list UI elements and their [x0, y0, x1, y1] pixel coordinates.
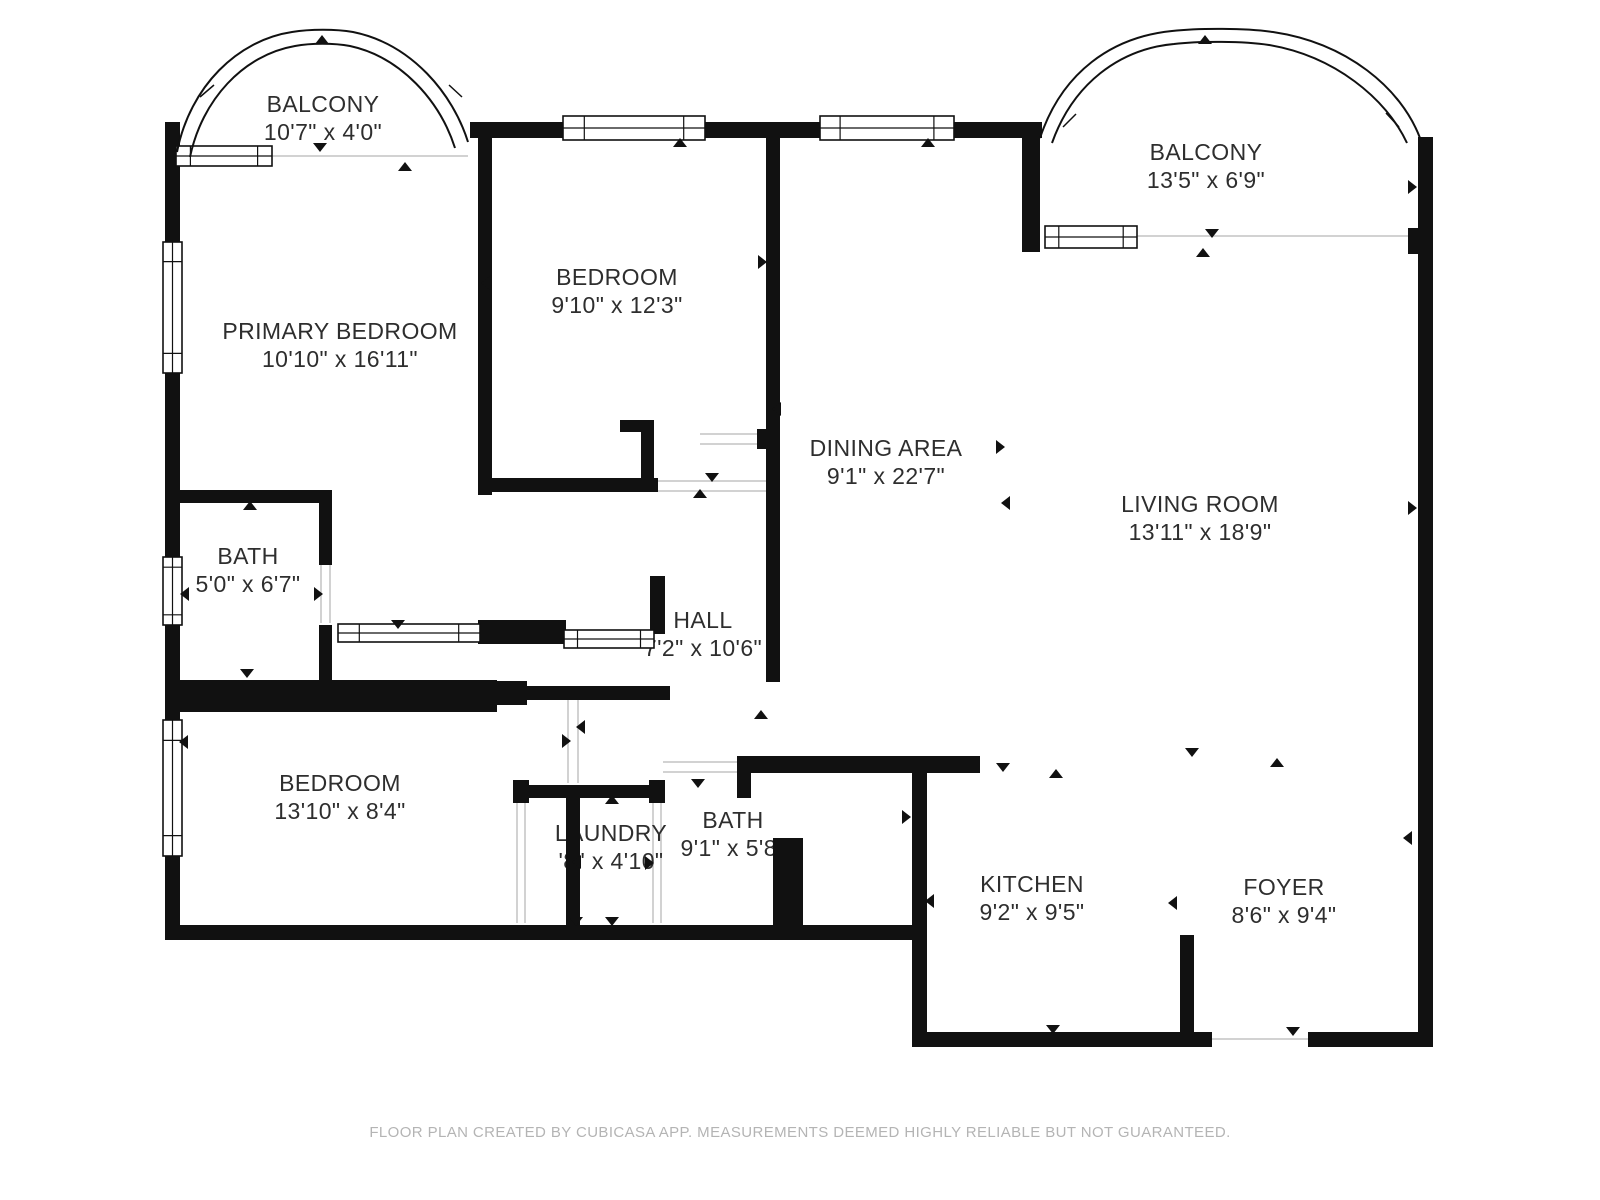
- door-arrow-icon: [754, 710, 768, 719]
- room-label-dining-area: DINING AREA: [810, 435, 963, 461]
- room-dims-primary-bedroom: 10'10" x 16'11": [262, 346, 418, 372]
- room-dims-balcony-top-right: 13'5" x 6'9": [1147, 167, 1265, 193]
- wall: [1180, 935, 1194, 1034]
- wall: [165, 373, 180, 557]
- wall: [766, 122, 780, 682]
- room-label-bedroom-top: BEDROOM: [556, 264, 678, 290]
- wall: [737, 756, 751, 798]
- balcony-arch-right-tick: [1386, 113, 1399, 127]
- wall: [912, 1032, 1212, 1047]
- room-label-balcony-top-left: BALCONY: [267, 91, 380, 117]
- wall: [1022, 122, 1040, 252]
- room-dims-foyer: 8'6" x 9'4": [1232, 902, 1337, 928]
- wall: [757, 429, 766, 449]
- door-arrow-icon: [1403, 831, 1412, 845]
- room-dims-balcony-top-left: 10'7" x 4'0": [264, 119, 382, 145]
- room-label-bath-main: BATH: [702, 807, 763, 833]
- door-arrow-icon: [1168, 896, 1177, 910]
- balcony-arch-right-inner: [1052, 42, 1407, 143]
- room-dims-hall: 7'2" x 10'6": [644, 635, 762, 661]
- room-dims-dining-area: 9'1" x 22'7": [827, 463, 945, 489]
- door-arrow-icon: [315, 35, 329, 44]
- wall: [1408, 228, 1418, 254]
- room-dims-bath-main: 9'1" x 5'8": [681, 835, 786, 861]
- floor-plan-canvas: BALCONY10'7" x 4'0"BALCONY13'5" x 6'9"PR…: [0, 0, 1600, 1200]
- door-arrow-icon: [313, 143, 327, 152]
- door-arrow-icon: [758, 255, 767, 269]
- wall: [478, 620, 566, 644]
- wall: [737, 756, 980, 773]
- room-label-foyer: FOYER: [1243, 874, 1324, 900]
- wall: [165, 680, 497, 712]
- footer-disclaimer: FLOOR PLAN CREATED BY CUBICASA APP. MEAS…: [0, 1124, 1600, 1141]
- wall: [620, 420, 654, 432]
- wall: [165, 122, 180, 242]
- door-arrow-icon: [240, 669, 254, 678]
- room-dims-kitchen: 9'2" x 9'5": [980, 899, 1085, 925]
- wall: [319, 490, 332, 565]
- wall: [650, 576, 665, 634]
- door-arrow-icon: [1049, 769, 1063, 778]
- wall: [165, 490, 332, 503]
- wall: [912, 760, 927, 1047]
- wall: [1308, 1032, 1433, 1047]
- room-label-kitchen: KITCHEN: [980, 871, 1084, 897]
- wall: [165, 925, 927, 940]
- door-arrow-icon: [691, 779, 705, 788]
- floor-plan-svg: BALCONY10'7" x 4'0"BALCONY13'5" x 6'9"PR…: [0, 0, 1600, 1200]
- door-arrow-icon: [1185, 748, 1199, 757]
- door-arrow-icon: [1196, 248, 1210, 257]
- room-label-bath-primary: BATH: [217, 543, 278, 569]
- room-label-hall: HALL: [673, 607, 732, 633]
- room-dims-bath-primary: 5'0" x 6'7": [196, 571, 301, 597]
- door-arrow-icon: [1408, 180, 1417, 194]
- room-dims-living-room: 13'11" x 18'9": [1129, 519, 1272, 545]
- door-arrow-icon: [902, 810, 911, 824]
- door-arrow-icon: [1198, 35, 1212, 44]
- door-arrow-icon: [1270, 758, 1284, 767]
- wall: [470, 122, 1042, 138]
- door-arrow-icon: [1001, 496, 1010, 510]
- wall: [513, 785, 665, 798]
- balcony-arch-right-outer: [1040, 29, 1420, 138]
- door-arrow-icon: [1286, 1027, 1300, 1036]
- wall: [478, 138, 492, 495]
- room-dims-bedroom-top: 9'10" x 12'3": [551, 292, 682, 318]
- wall: [1418, 137, 1433, 1047]
- door-arrow-icon: [605, 917, 619, 926]
- room-dims-bedroom-bottom: 13'10" x 8'4": [274, 798, 405, 824]
- wall: [497, 686, 670, 700]
- door-arrow-icon: [562, 734, 571, 748]
- balcony-arch-left-tick: [449, 85, 462, 97]
- door-arrow-icon: [996, 440, 1005, 454]
- door-arrow-icon: [398, 162, 412, 171]
- door-arrow-icon: [1408, 501, 1417, 515]
- room-label-living-room: LIVING ROOM: [1121, 491, 1279, 517]
- wall: [478, 478, 658, 492]
- room-label-bedroom-bottom: BEDROOM: [279, 770, 401, 796]
- room-label-primary-bedroom: PRIMARY BEDROOM: [222, 318, 457, 344]
- wall: [641, 432, 654, 482]
- door-arrow-icon: [996, 763, 1010, 772]
- wall: [773, 838, 803, 927]
- room-label-balcony-top-right: BALCONY: [1150, 139, 1263, 165]
